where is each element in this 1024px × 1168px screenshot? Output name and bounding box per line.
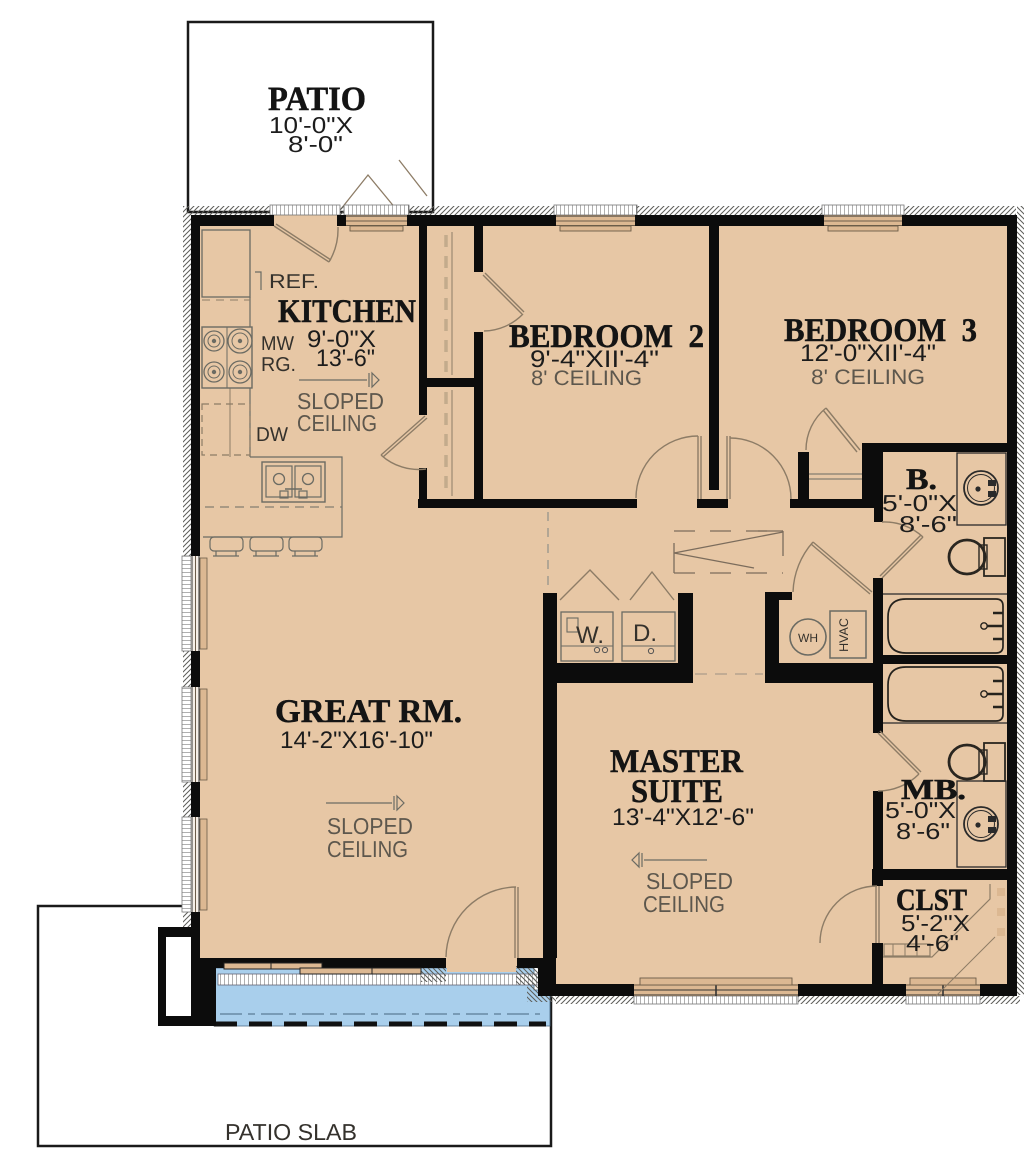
svg-text:HVAC: HVAC bbox=[837, 618, 851, 652]
svg-text:CEILING: CEILING bbox=[327, 836, 408, 862]
svg-text:KITCHEN: KITCHEN bbox=[278, 294, 416, 330]
svg-text:13'-6": 13'-6" bbox=[316, 345, 375, 372]
svg-text:CEILING: CEILING bbox=[643, 891, 725, 917]
svg-text:8'-6": 8'-6" bbox=[896, 818, 950, 844]
svg-text:12'-0"XII'-4": 12'-0"XII'-4" bbox=[800, 340, 936, 367]
svg-text:W.: W. bbox=[576, 622, 604, 649]
svg-text:8' CEILING: 8' CEILING bbox=[811, 366, 925, 389]
svg-text:CEILING: CEILING bbox=[297, 410, 377, 436]
svg-text:8' CEILING: 8' CEILING bbox=[531, 367, 642, 390]
svg-text:WH: WH bbox=[798, 631, 818, 645]
svg-text:4'-6": 4'-6" bbox=[906, 930, 959, 956]
svg-text:PATIO SLAB: PATIO SLAB bbox=[225, 1119, 357, 1145]
svg-text:8'-0": 8'-0" bbox=[288, 131, 343, 157]
svg-text:REF.: REF. bbox=[269, 271, 319, 293]
svg-text:GREAT RM.: GREAT RM. bbox=[275, 694, 462, 730]
svg-text:13'-4"X12'-6": 13'-4"X12'-6" bbox=[612, 804, 754, 831]
svg-text:RG.: RG. bbox=[261, 354, 296, 376]
svg-text:D.: D. bbox=[633, 620, 657, 647]
svg-text:8'-6": 8'-6" bbox=[899, 511, 957, 537]
svg-text:14'-2"X16'-10": 14'-2"X16'-10" bbox=[280, 727, 433, 754]
svg-text:DW: DW bbox=[256, 424, 288, 446]
svg-text:MW: MW bbox=[261, 333, 294, 355]
